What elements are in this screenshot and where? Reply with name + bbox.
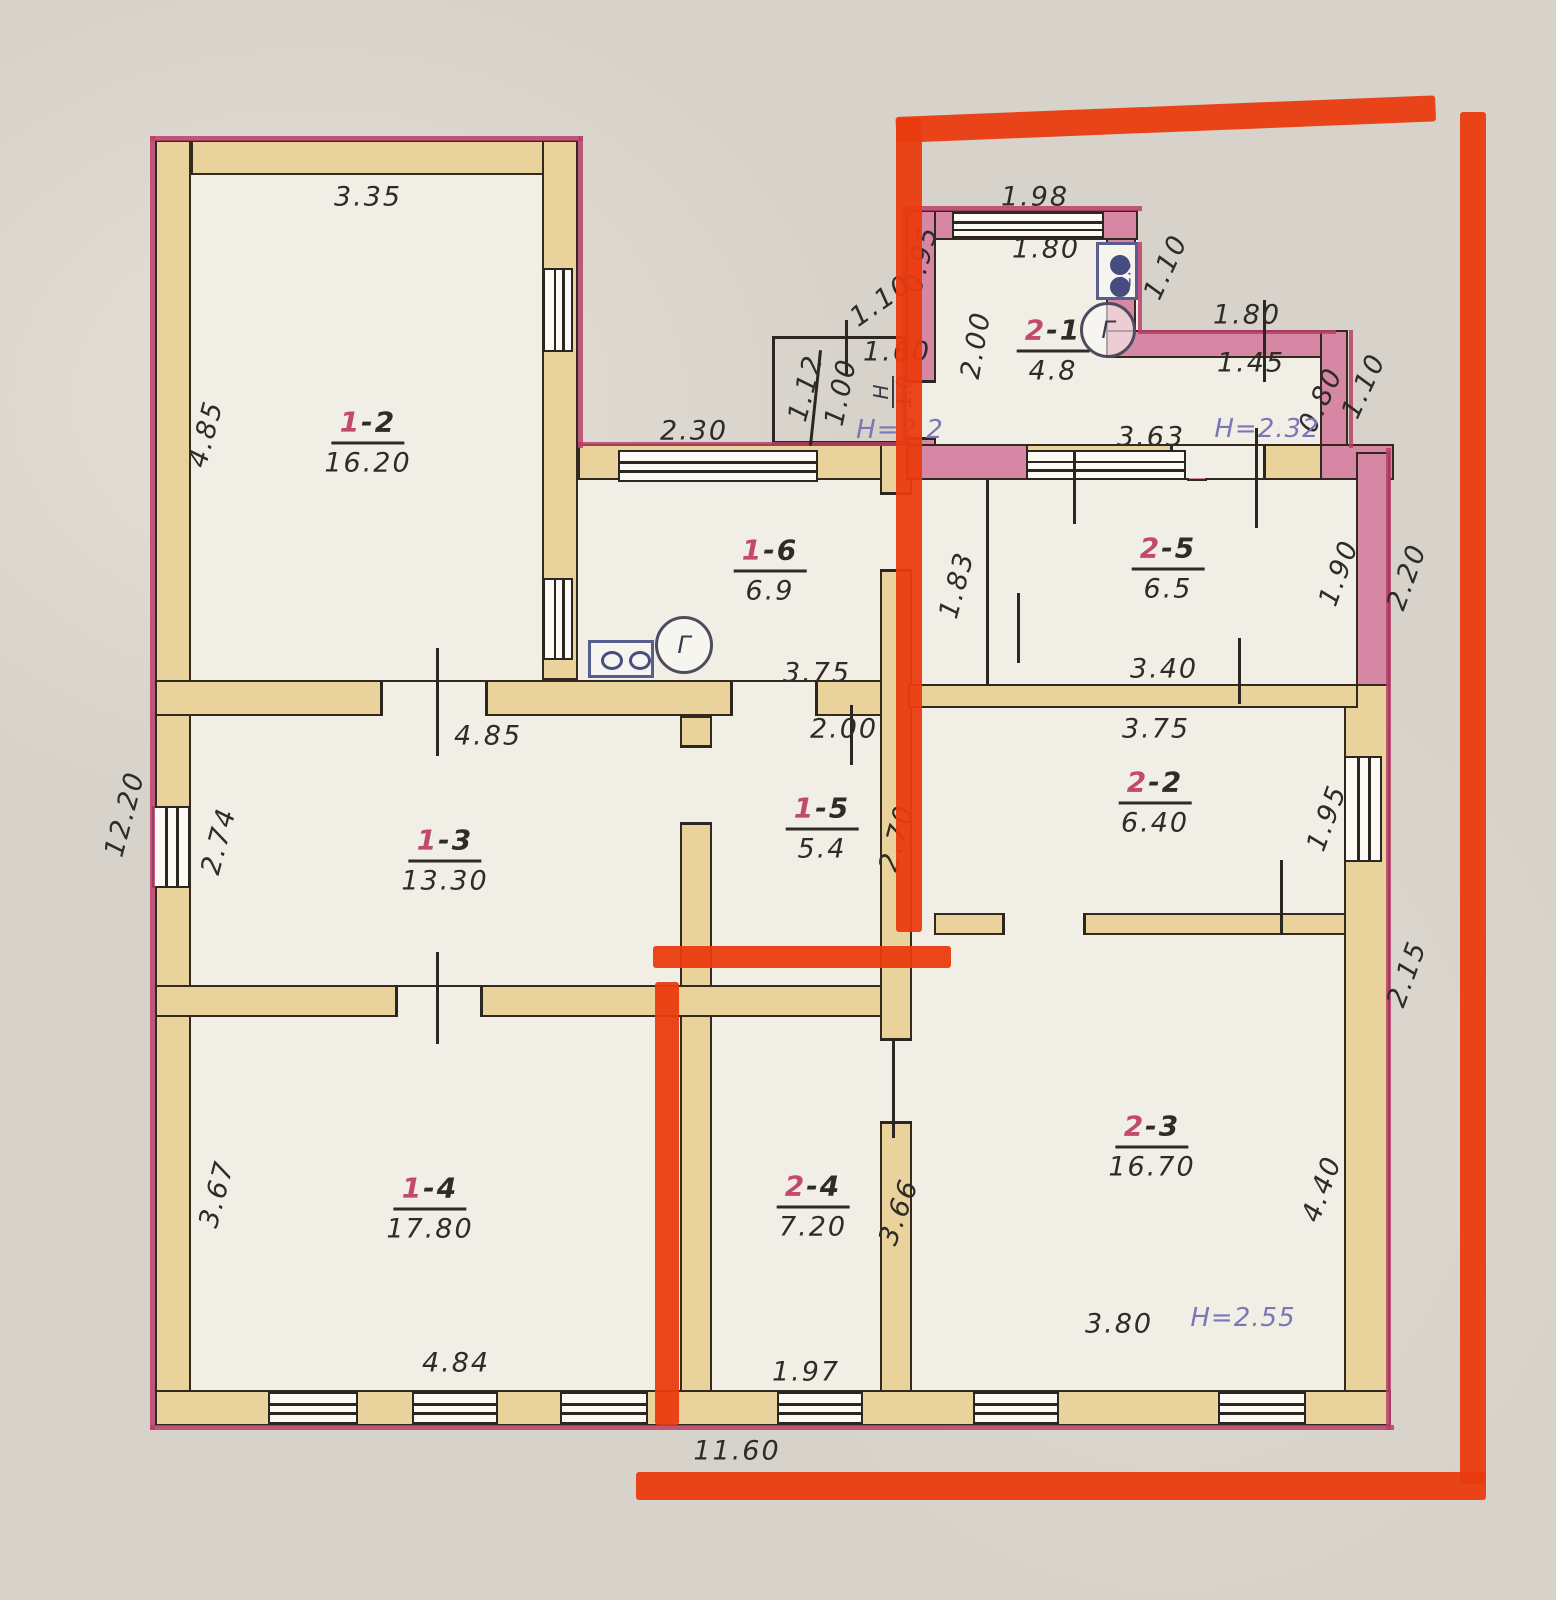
room-area-value: 6.5: [1132, 574, 1205, 605]
dimension-label: 12.20: [99, 768, 152, 860]
plan-outer-stroke: [150, 1425, 1394, 1430]
room-number-unit-digit: 1: [417, 824, 438, 857]
room-number: 1-2: [332, 406, 405, 445]
room-number-unit-digit: 1: [402, 1172, 423, 1205]
room-area-value: 6.40: [1119, 808, 1192, 839]
dimension-label: 4.84: [422, 1348, 490, 1379]
room-label: 2-56.5: [1132, 532, 1205, 605]
window-symbol: [412, 1392, 498, 1424]
room-number-unit-digit: 2: [1124, 1110, 1145, 1143]
window-symbol: [152, 806, 190, 888]
room-label: 1-417.80: [386, 1172, 473, 1245]
door-opening: [380, 682, 488, 716]
division-marker-line: [895, 95, 1436, 143]
door-opening: [880, 1038, 912, 1124]
window-symbol: [618, 450, 818, 482]
room-number: 2-5: [1132, 532, 1205, 571]
division-marker-line: [653, 946, 951, 968]
dimension-label: 4.85: [454, 721, 522, 752]
dimension-label: 1.80: [1012, 234, 1080, 265]
gas-meter-icon: Г: [655, 616, 713, 674]
wall-segment: [934, 913, 1346, 935]
stove-burner: [601, 651, 623, 670]
room-number-unit-digit: 1: [340, 406, 361, 439]
plan-outer-stroke: [578, 136, 583, 448]
dimension-label: 3.75: [1122, 714, 1190, 745]
window-symbol: [1344, 756, 1382, 862]
room-area-value: 6.9: [734, 576, 807, 607]
stove-burner: [629, 651, 651, 670]
room-area-value: 16.70: [1108, 1152, 1195, 1183]
room-number: 1-6: [734, 534, 807, 573]
plan-outer-stroke: [150, 136, 155, 1430]
dimension-label: 3.40: [1130, 654, 1198, 685]
dimension-label: 1.45: [1217, 348, 1285, 379]
partition-line: [986, 480, 989, 686]
dimension-label: 1.97: [772, 1357, 840, 1388]
gas-stove-icon: 2.8: [1096, 242, 1138, 300]
plan-outer-stroke: [1138, 330, 1336, 334]
dimension-label: 1.98: [1001, 182, 1069, 213]
wall-segment: [155, 140, 191, 1425]
dimension-label: 1.80: [1213, 300, 1281, 331]
door-opening: [395, 987, 483, 1017]
door-opening: [1002, 913, 1086, 935]
window-symbol: [1026, 450, 1186, 480]
plan-outer-stroke: [150, 136, 583, 141]
window-symbol: [543, 578, 573, 660]
room-label: 2-316.70: [1108, 1110, 1195, 1183]
wall-segment: [191, 140, 578, 175]
dimension-label: 2.00: [810, 714, 878, 745]
stove-note: 2.8: [1115, 259, 1135, 286]
room-label: 2-14.8: [1017, 314, 1090, 387]
gas-meter-icon: Г: [1080, 302, 1136, 358]
room-area-value: 16.20: [324, 448, 411, 479]
division-marker-line: [636, 1472, 1486, 1500]
room-number: 1-3: [409, 824, 482, 863]
dimension-tick: [1017, 593, 1020, 663]
room-number-unit-digit: 1: [742, 534, 763, 567]
room-number-unit-digit: 2: [1127, 766, 1148, 799]
room-number: 2-4: [777, 1170, 850, 1209]
dimension-tick: [1280, 860, 1283, 935]
room-number: 2-1: [1017, 314, 1090, 353]
dimension-label: 1.10: [1138, 230, 1195, 305]
division-marker-line: [655, 982, 679, 1425]
door-opening: [680, 745, 712, 825]
dimension-label: 11.60: [693, 1436, 780, 1467]
dimension-label: 2.30: [660, 416, 728, 447]
floor-plan: 3.354.852.301.121.001.101.601.981.800.95…: [0, 0, 1556, 1600]
room-label: 1-313.30: [401, 824, 488, 897]
room-number: 2-2: [1119, 766, 1192, 805]
dimension-label: 3.75: [783, 658, 851, 689]
dimension-label: 3.63: [1117, 422, 1185, 453]
division-marker-line: [896, 118, 922, 932]
dimension-tick: [892, 1038, 895, 1138]
annex-wall-segment: [1356, 452, 1390, 686]
gas-stove-icon: [588, 640, 654, 678]
room-label: 1-66.9: [734, 534, 807, 607]
window-symbol: [1218, 1392, 1306, 1424]
window-symbol: [543, 268, 573, 352]
room-number: 1-4: [394, 1172, 467, 1211]
room-label: 2-47.20: [777, 1170, 850, 1243]
dimension-tick: [1073, 452, 1076, 524]
ceiling-height-label: Н=2.55: [1190, 1303, 1295, 1333]
room-number: 2-3: [1116, 1110, 1189, 1149]
window-symbol: [973, 1392, 1059, 1424]
room-number-unit-digit: 2: [785, 1170, 806, 1203]
room-area-value: 17.80: [386, 1214, 473, 1245]
wall-segment: [908, 684, 1358, 708]
dimension-tick: [436, 648, 439, 756]
division-marker-line: [1460, 112, 1486, 1484]
room-area-value: 4.8: [1017, 356, 1090, 387]
room-number-unit-digit: 1: [794, 792, 815, 825]
room-label: 1-216.20: [324, 406, 411, 479]
fraction-numerator: Н: [871, 376, 894, 408]
dimension-tick: [1238, 638, 1241, 704]
room-number-unit-digit: 2: [1140, 532, 1161, 565]
building-footprint: [155, 141, 578, 1425]
room-label: 2-26.40: [1119, 766, 1192, 839]
window-symbol: [268, 1392, 358, 1424]
annex-wall-segment: [906, 444, 1028, 480]
wall-segment: [155, 985, 908, 1017]
room-area-value: 5.4: [786, 834, 859, 865]
dimension-label: 3.35: [334, 182, 402, 213]
room-area-value: 7.20: [777, 1212, 850, 1243]
room-label: 1-55.4: [786, 792, 859, 865]
dimension-tick: [436, 952, 439, 1044]
window-symbol: [560, 1392, 648, 1424]
dimension-label: 3.80: [1085, 1309, 1153, 1340]
room-number: 1-5: [786, 792, 859, 831]
room-area-value: 13.30: [401, 866, 488, 897]
window-symbol: [777, 1392, 863, 1424]
ceiling-height-label: Н=2.32: [1214, 414, 1319, 444]
room-number-unit-digit: 2: [1025, 314, 1046, 347]
